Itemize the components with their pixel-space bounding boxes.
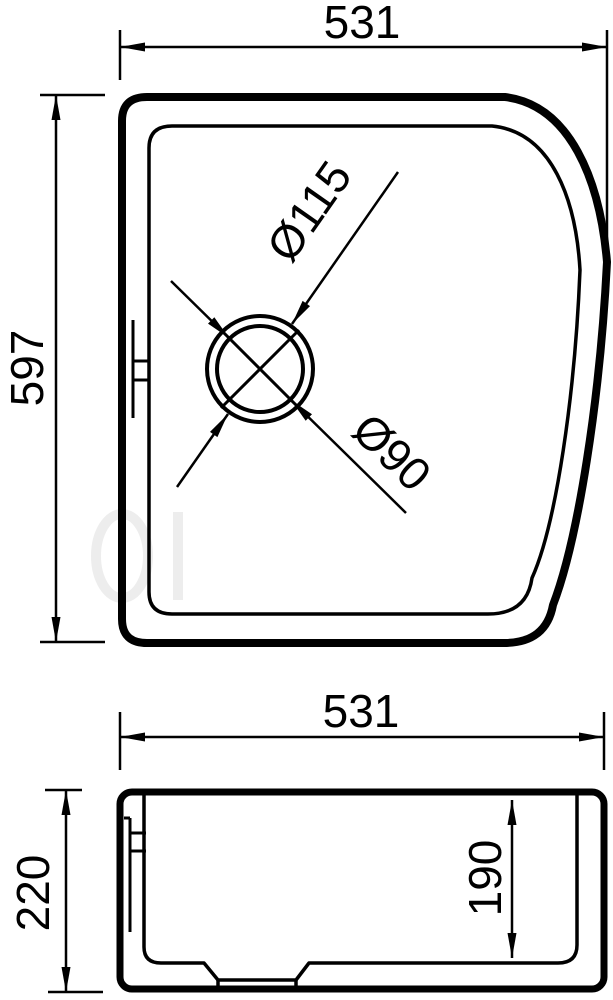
technical-drawing-canvas: Ø115 Ø90 531 597 [0,0,613,1000]
section-view: 531 220 190 [7,685,604,992]
section-outer-contour [120,792,604,989]
dim-label-drain-inner: Ø90 [343,403,442,501]
dim-label-top-height: 597 [1,330,53,407]
watermark [96,512,178,600]
dim-section-height: 220 [7,790,103,992]
dim-inner-depth: 190 [459,800,512,958]
top-view-outer-contour [122,97,607,643]
dim-label-top-width: 531 [324,0,401,48]
dim-top-height: 597 [1,95,105,642]
shower-tray-drawing: Ø115 Ø90 531 597 [0,0,613,1000]
dim-label-drain-outer: Ø115 [256,151,361,270]
top-view-inner-contour [149,126,580,614]
dim-label-section-height: 220 [7,855,59,932]
dim-label-inner-depth: 190 [459,840,511,917]
drain-cross-mark [221,330,299,408]
dim-section-width: 531 [120,685,604,770]
dim-label-section-width: 531 [323,685,400,737]
